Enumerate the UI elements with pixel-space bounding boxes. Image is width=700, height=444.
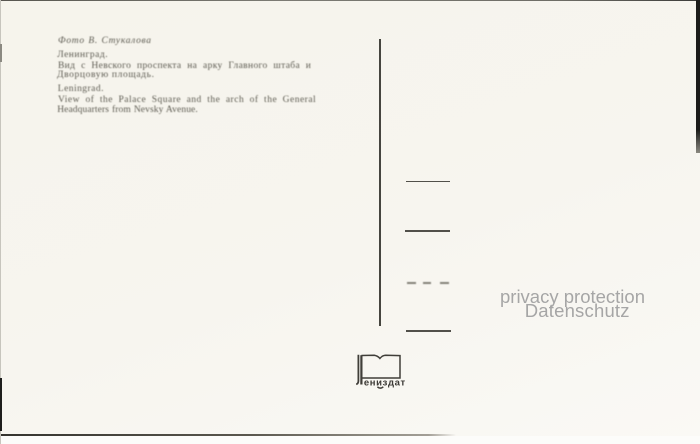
- svg-text:ениздат: ениздат: [364, 377, 406, 388]
